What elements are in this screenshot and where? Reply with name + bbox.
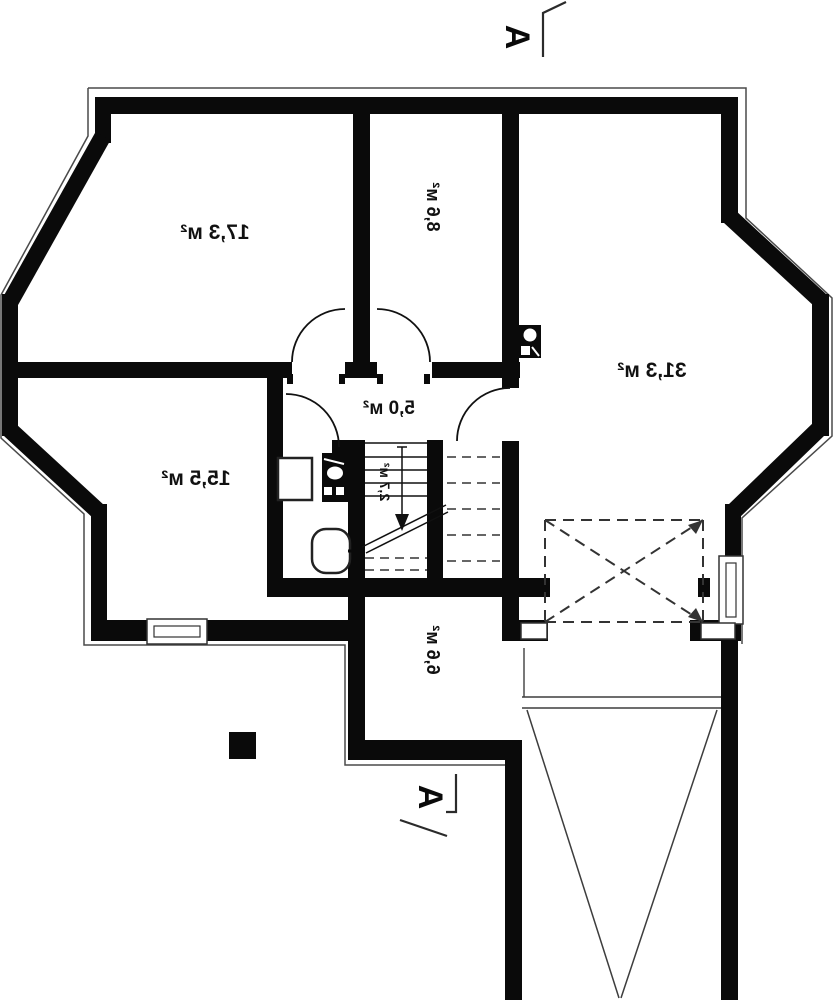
wall-right-center-lower (502, 441, 519, 640)
section-tick-bottom (400, 820, 447, 836)
wall-right-center-upper (502, 114, 519, 362)
wall-stair-left (348, 440, 365, 760)
wall-right-center-stub (502, 362, 519, 388)
window-bottom-left (147, 619, 207, 644)
wall-center-top-vertical (353, 114, 370, 362)
wall-hall-north-hub (345, 362, 377, 378)
section-letter-top: A (498, 25, 536, 50)
room-label-31-3: 31,3 м² (617, 359, 686, 382)
door-arc-bathroom (286, 394, 339, 447)
chimney-block (229, 732, 256, 759)
door-arc-room313 (457, 388, 510, 441)
door-stop-1 (287, 374, 293, 384)
room-label-15-5: 15,5 м² (161, 467, 230, 490)
wall-hall-north-left (8, 362, 292, 378)
void-arrow-head (688, 608, 703, 622)
wall-top (95, 97, 738, 114)
room-label-17-3: 17,3 м² (180, 221, 249, 244)
eaves-outline (1, 88, 832, 765)
door-stop-3 (377, 374, 383, 384)
room-label-2-7: 2,7 м² (377, 462, 393, 501)
room-label-6-6: 6,6 м² (423, 625, 443, 674)
garage-slope-line (621, 710, 717, 998)
wall-bath-top-stub (332, 440, 364, 455)
room-label-5-0: 5,0 м² (363, 398, 415, 419)
wall-bottom-room66 (348, 740, 522, 760)
garage-bay (522, 697, 721, 998)
room-label-8-6: 8,6 м² (423, 182, 443, 231)
wall-bottom-left-chamfer (10, 430, 99, 512)
room-labels: 17,3 м² 8,6 м² 31,3 м² 15,5 м² 5,0 м² 2,… (161, 182, 686, 674)
wall-garage-left (505, 757, 522, 1000)
shower-tray (278, 458, 312, 500)
wall-top-right-chamfer (729, 216, 820, 300)
door-stop-4 (424, 374, 430, 384)
section-line-top (543, 2, 566, 57)
window-bottom-right (701, 623, 735, 639)
wall-top-left-chamfer (10, 136, 103, 302)
garage-slope-line (527, 710, 619, 998)
void-opening (545, 520, 703, 622)
section-marker-top: A (498, 2, 566, 57)
wall-right (812, 294, 829, 436)
wall-bottom-right-chamfer (733, 428, 820, 512)
void-arrow-head (688, 520, 703, 534)
door-stop-2 (339, 374, 345, 384)
window-right (719, 556, 743, 624)
door-arc-room17 (292, 309, 345, 362)
washbasin-unit (322, 453, 348, 502)
ventilation-shaft (519, 325, 541, 358)
section-letter-bottom: A (411, 785, 449, 810)
door-arc-room86 (377, 309, 430, 362)
wall-garage-right (721, 640, 738, 1000)
floor-plan-drawing: 17,3 м² 8,6 м² 31,3 м² 15,5 м² 5,0 м² 2,… (0, 0, 833, 1000)
stair-arrow-head (395, 514, 409, 531)
window-bottom-center (521, 623, 547, 639)
wall-bottom-room15 (91, 620, 361, 641)
wall-left-lower (91, 504, 107, 636)
floor-plan-page: 17,3 м² 8,6 м² 31,3 м² 15,5 м² 5,0 м² 2,… (0, 0, 833, 1000)
section-marker-bottom: A (400, 774, 456, 836)
walls (2, 97, 829, 1000)
wall-top-right-vertical (721, 97, 738, 223)
